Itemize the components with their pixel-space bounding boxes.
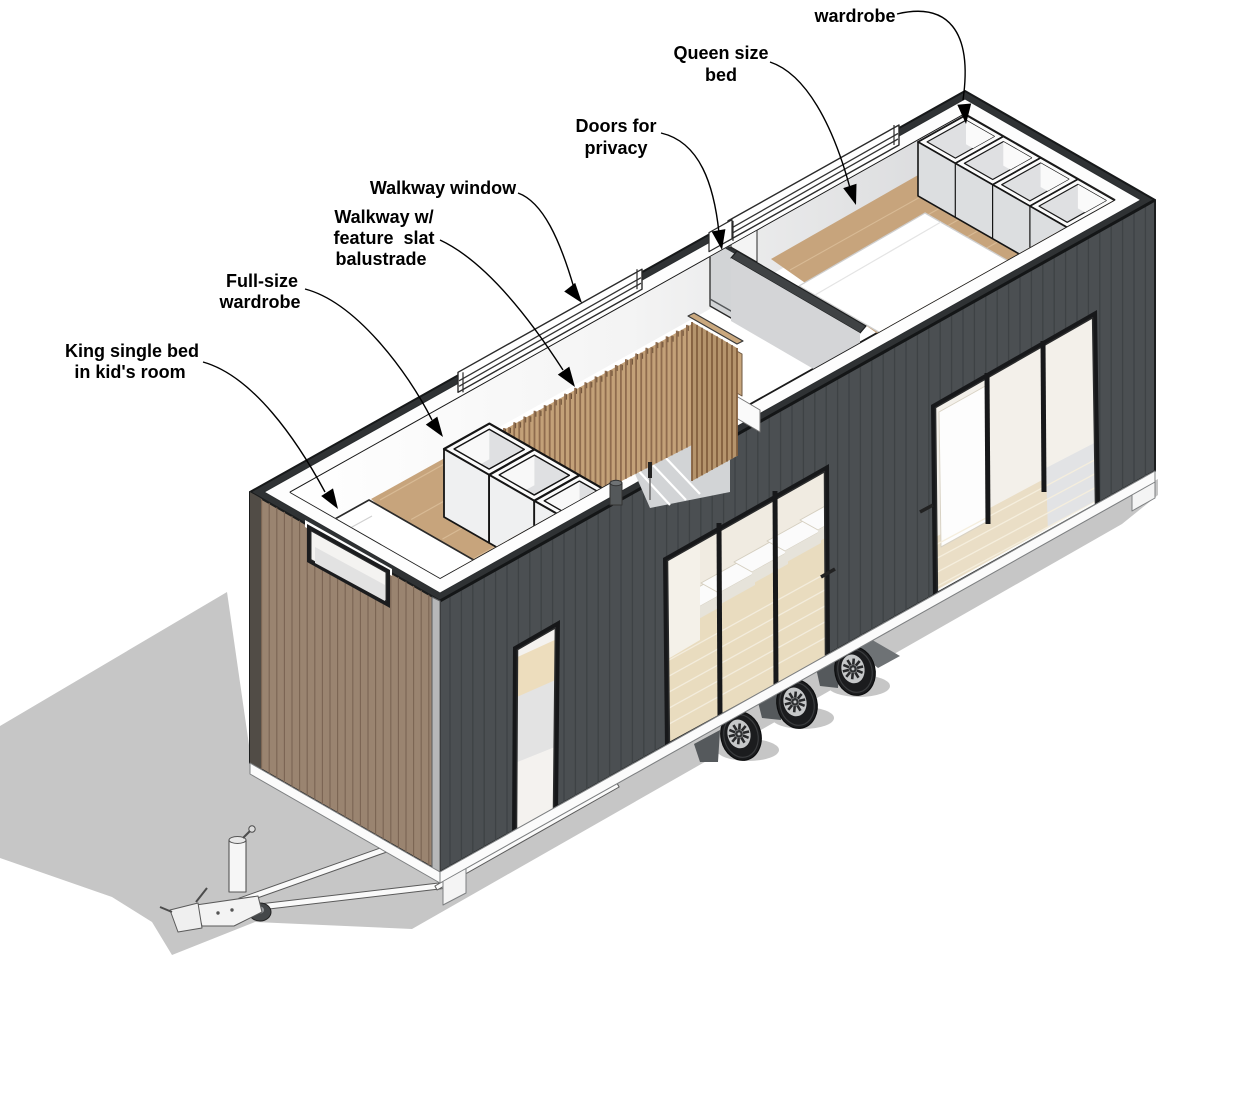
svg-text:privacy: privacy [584,138,647,158]
svg-text:bed: bed [705,65,737,85]
svg-text:Walkway w/: Walkway w/ [334,207,433,227]
svg-text:feature slat: feature slat [333,228,434,248]
svg-text:King single bed: King single bed [65,341,199,361]
svg-text:Full-size: Full-size [226,271,298,291]
svg-text:balustrade: balustrade [335,249,426,269]
svg-text:in kid's room: in kid's room [74,362,185,382]
svg-text:wardrobe: wardrobe [218,292,300,312]
svg-text:wardrobe: wardrobe [813,6,895,26]
svg-text:Queen size: Queen size [673,43,768,63]
svg-text:Walkway window: Walkway window [370,178,517,198]
svg-text:Doors for: Doors for [576,116,657,136]
